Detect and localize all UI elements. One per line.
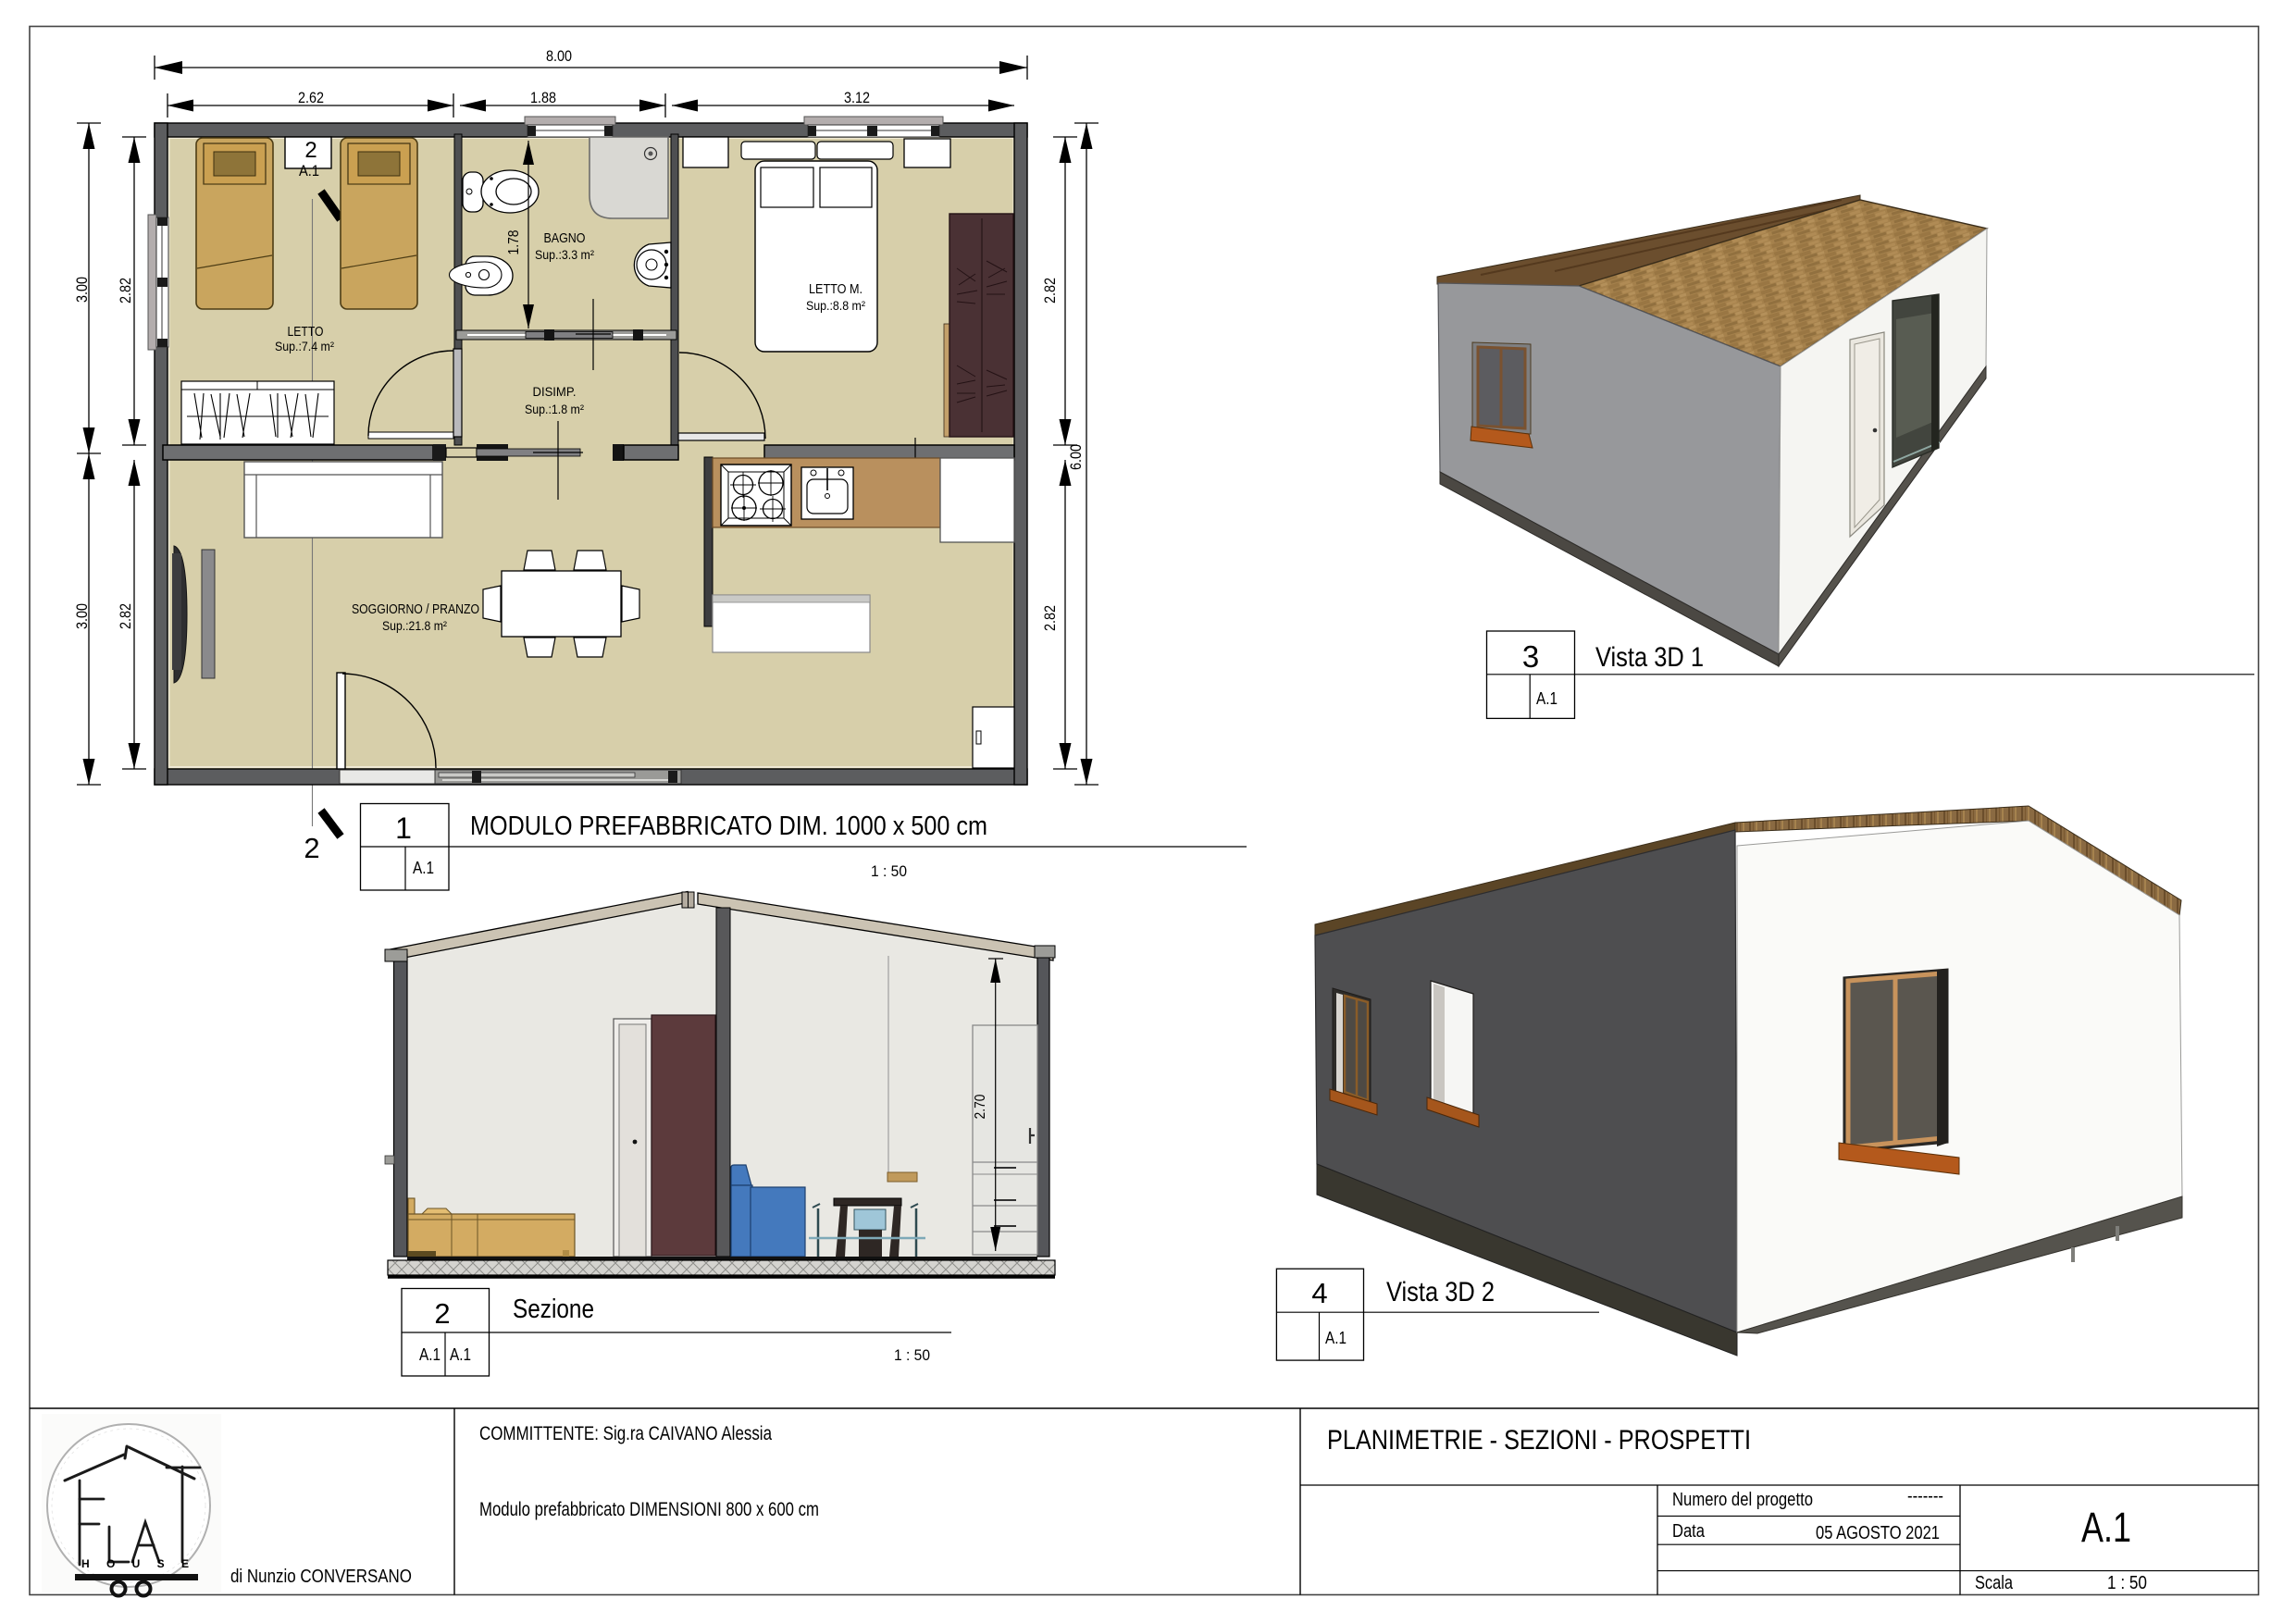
svg-text:Numero del progetto: Numero del progetto xyxy=(1672,1490,1813,1510)
svg-text:2: 2 xyxy=(434,1297,450,1330)
svg-text:Modulo prefabbricato DIMENSION: Modulo prefabbricato DIMENSIONI 800 x 60… xyxy=(479,1499,819,1520)
svg-text:A.1: A.1 xyxy=(1325,1329,1347,1347)
svg-text:Sup.:1.8 m²: Sup.:1.8 m² xyxy=(525,402,584,416)
svg-text:DISIMP.: DISIMP. xyxy=(533,384,577,399)
svg-text:2.82: 2.82 xyxy=(1041,605,1059,631)
svg-text:1.78: 1.78 xyxy=(506,229,522,254)
svg-text:2.82: 2.82 xyxy=(1041,278,1059,304)
svg-text:A.1: A.1 xyxy=(419,1345,441,1364)
svg-text:Sup.:7.4 m²: Sup.:7.4 m² xyxy=(275,339,334,353)
svg-text:1 : 50: 1 : 50 xyxy=(894,1346,930,1364)
svg-text:H O U S E: H O U S E xyxy=(81,1557,196,1570)
svg-text:A.1: A.1 xyxy=(299,162,319,180)
svg-text:2: 2 xyxy=(304,832,319,864)
svg-text:3.12: 3.12 xyxy=(844,89,870,106)
svg-text:2.62: 2.62 xyxy=(298,89,324,106)
svg-text:2: 2 xyxy=(304,138,316,163)
svg-text:COMMITTENTE: Sig.ra CAIVANO Al: COMMITTENTE: Sig.ra CAIVANO Alessia xyxy=(479,1423,772,1444)
svg-text:8.00: 8.00 xyxy=(546,47,572,65)
svg-text:4: 4 xyxy=(1311,1277,1327,1309)
svg-text:SOGGIORNO / PRANZO: SOGGIORNO / PRANZO xyxy=(352,601,479,617)
svg-text:A.1: A.1 xyxy=(450,1345,471,1364)
svg-text:1: 1 xyxy=(395,811,412,845)
svg-text:05 AGOSTO 2021: 05 AGOSTO 2021 xyxy=(1816,1523,1940,1543)
svg-text:BAGNO: BAGNO xyxy=(544,230,586,246)
svg-text:Vista 3D 1: Vista 3D 1 xyxy=(1595,642,1704,673)
svg-text:LETTO M.: LETTO M. xyxy=(809,281,863,297)
svg-text:A.1: A.1 xyxy=(1536,689,1558,708)
svg-text:1 : 50: 1 : 50 xyxy=(871,862,907,880)
svg-text:2.82: 2.82 xyxy=(117,278,134,304)
svg-text:PLANIMETRIE - SEZIONI - PROSPE: PLANIMETRIE - SEZIONI - PROSPETTI xyxy=(1327,1425,1751,1456)
svg-text:Data: Data xyxy=(1672,1521,1706,1542)
svg-text:2.82: 2.82 xyxy=(117,603,134,629)
svg-text:Sezione: Sezione xyxy=(513,1295,594,1324)
svg-text:1.88: 1.88 xyxy=(530,89,556,106)
svg-text:A.1: A.1 xyxy=(2081,1504,2131,1551)
svg-text:3.00: 3.00 xyxy=(73,603,91,629)
svg-text:1 : 50: 1 : 50 xyxy=(2107,1573,2147,1593)
svg-text:3: 3 xyxy=(1522,639,1539,674)
svg-text:3.00: 3.00 xyxy=(73,277,91,303)
svg-text:MODULO PREFABBRICATO DIM. 1000: MODULO PREFABBRICATO DIM. 1000 x 500 cm xyxy=(470,811,987,841)
svg-text:di Nunzio CONVERSANO: di Nunzio CONVERSANO xyxy=(230,1567,412,1587)
svg-text:Scala: Scala xyxy=(1975,1573,2014,1593)
svg-text:Vista 3D 2: Vista 3D 2 xyxy=(1386,1277,1495,1307)
svg-text:Sup.:3.3 m²: Sup.:3.3 m² xyxy=(535,247,594,262)
svg-text:6.00: 6.00 xyxy=(1067,444,1085,470)
svg-text:-------: ------- xyxy=(1907,1486,1943,1506)
svg-text:Sup.:21.8 m²: Sup.:21.8 m² xyxy=(382,618,447,633)
svg-text:2.70: 2.70 xyxy=(973,1094,988,1119)
svg-text:LETTO: LETTO xyxy=(288,324,324,340)
svg-text:Sup.:8.8 m²: Sup.:8.8 m² xyxy=(806,298,865,313)
svg-text:A.1: A.1 xyxy=(413,859,434,877)
